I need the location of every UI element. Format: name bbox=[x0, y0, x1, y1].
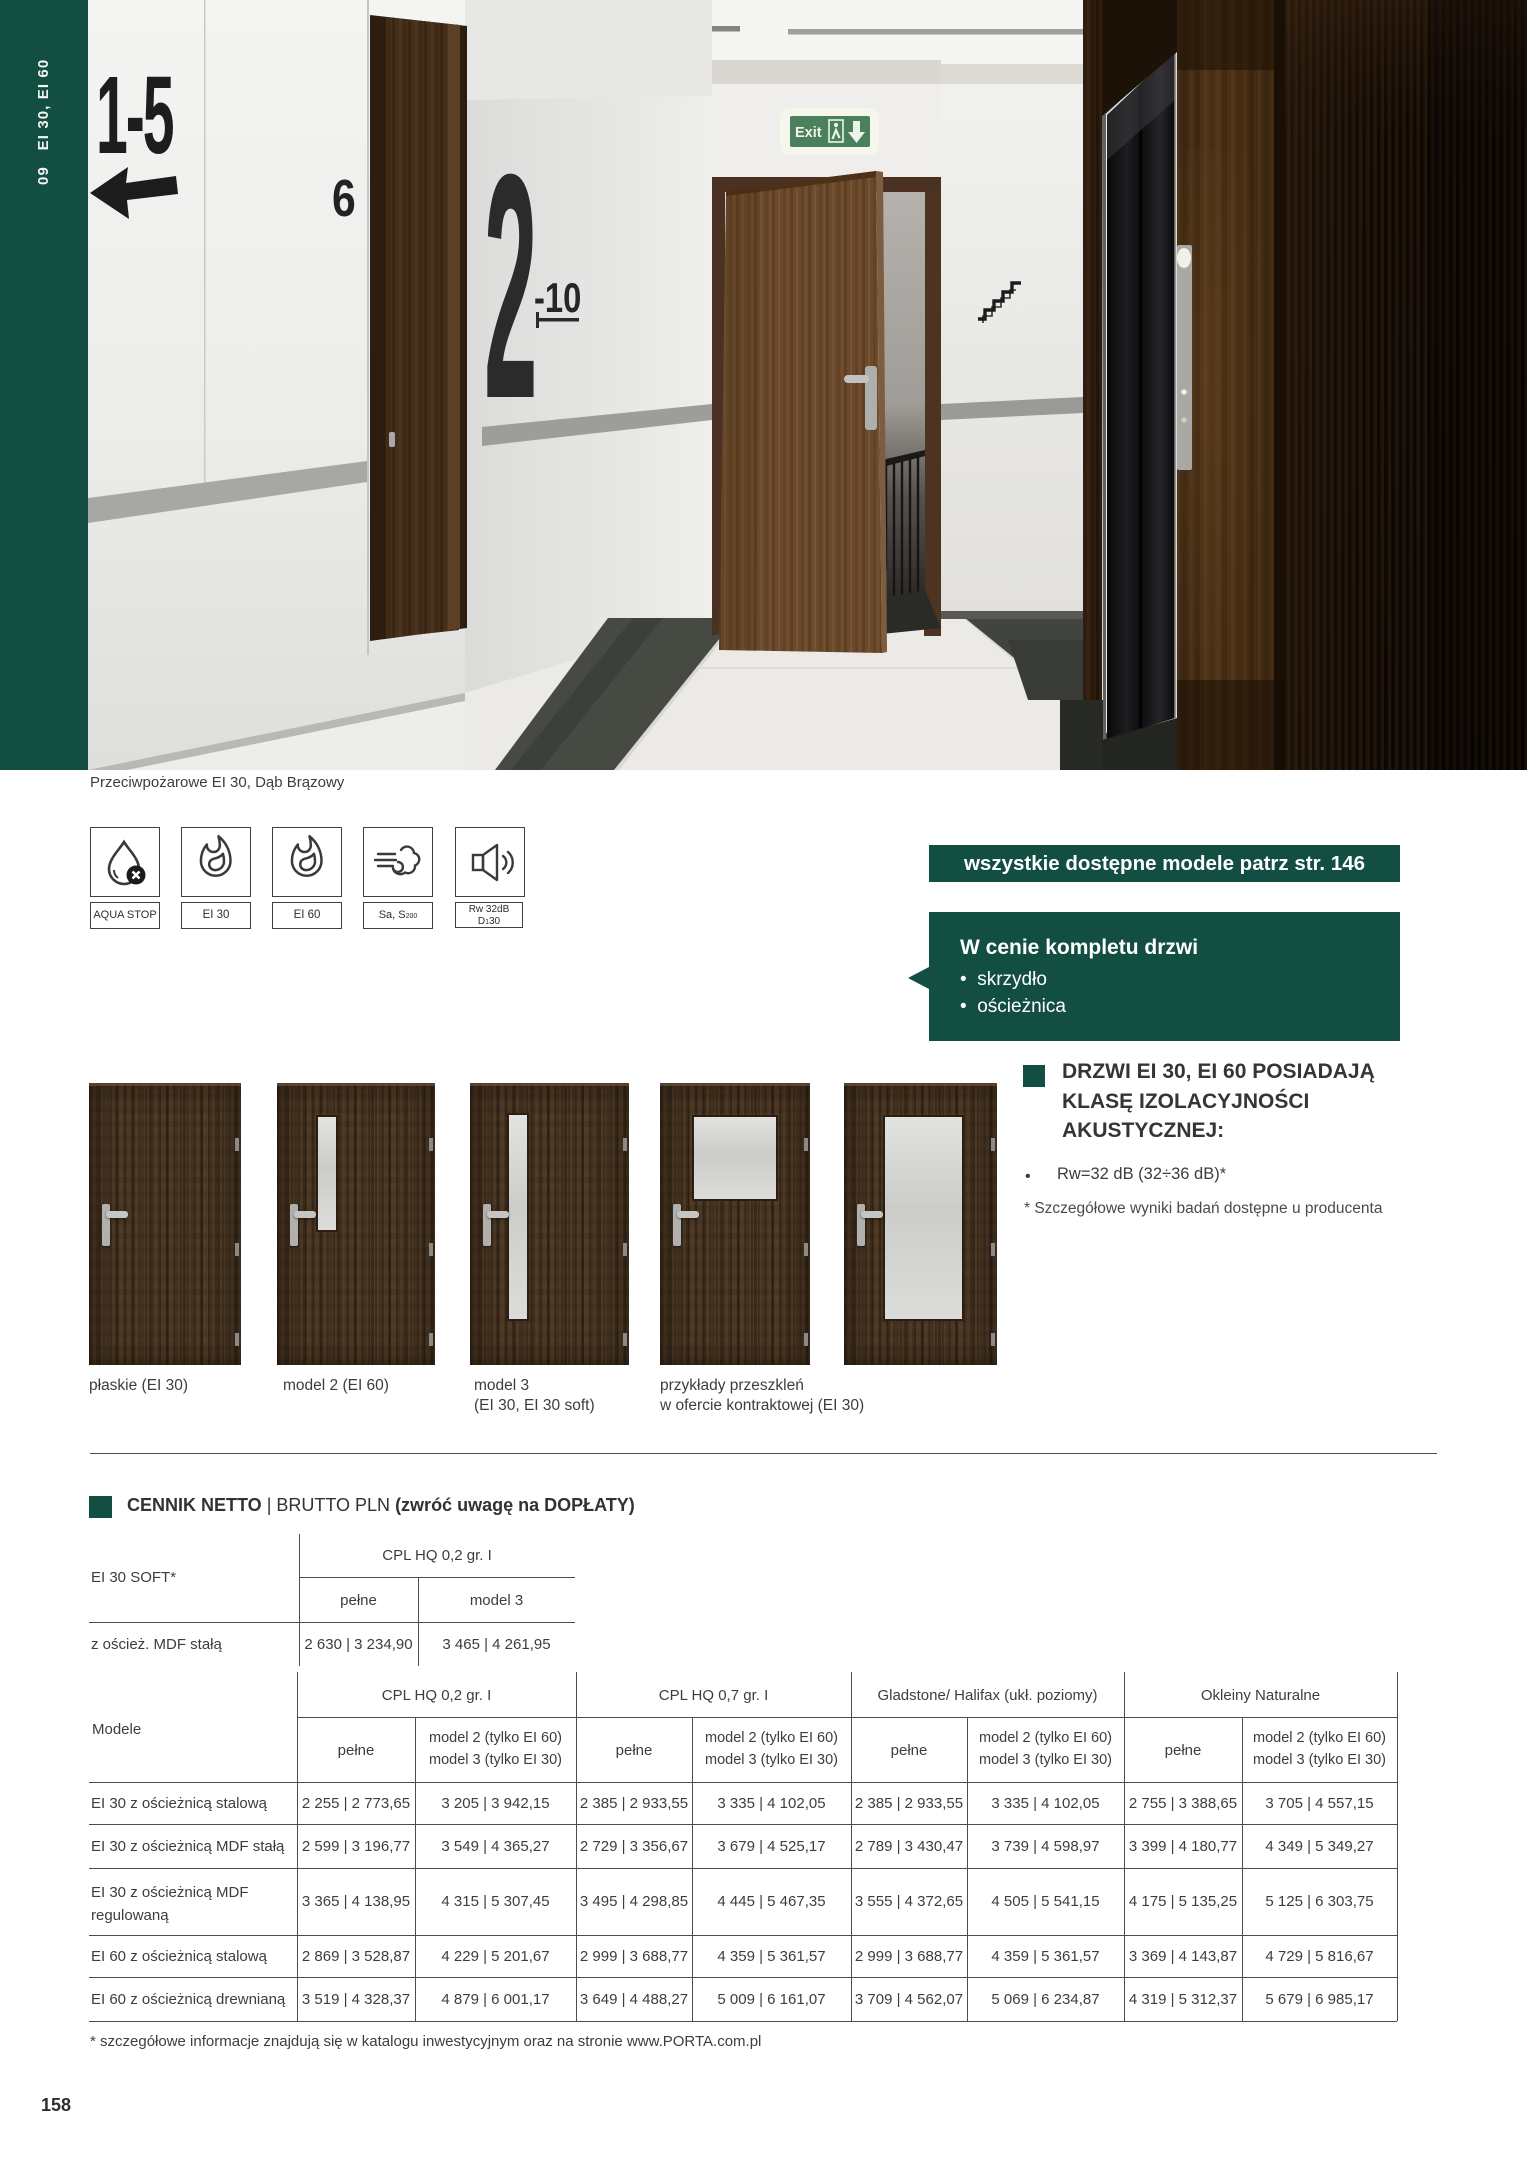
svg-text:1-5: 1-5 bbox=[96, 54, 173, 177]
svg-text:-10: -10 bbox=[534, 274, 581, 321]
svg-text:6: 6 bbox=[332, 170, 356, 228]
svg-text:Exit: Exit bbox=[795, 125, 822, 141]
svg-text:2: 2 bbox=[484, 108, 537, 466]
